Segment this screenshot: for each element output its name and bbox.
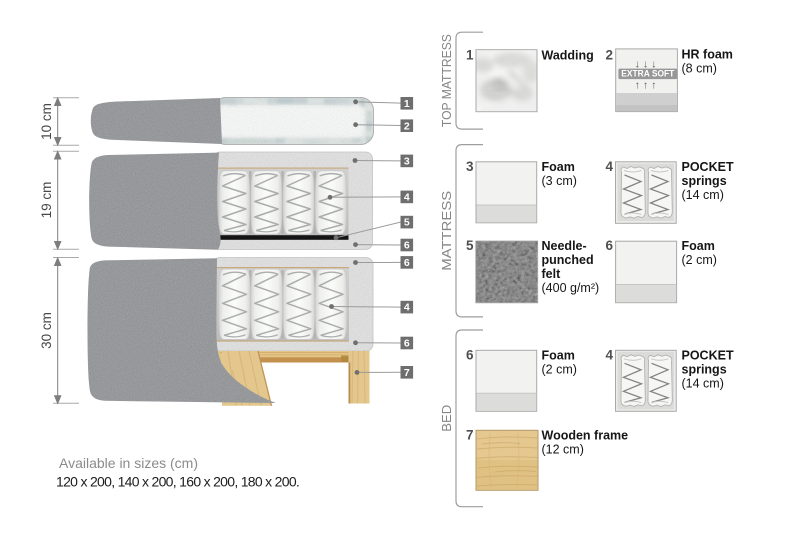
svg-text:3: 3 xyxy=(404,156,410,168)
svg-text:(12 cm): (12 cm) xyxy=(542,442,584,456)
svg-text:(2 cm): (2 cm) xyxy=(542,362,577,376)
svg-text:MATTRESS: MATTRESS xyxy=(440,191,454,271)
svg-text:Foam: Foam xyxy=(542,348,575,362)
svg-text:6: 6 xyxy=(404,338,410,350)
svg-text:1: 1 xyxy=(466,47,474,62)
svg-text:(400 g/m²): (400 g/m²) xyxy=(542,281,600,295)
svg-text:19 cm: 19 cm xyxy=(39,182,54,219)
svg-text:7: 7 xyxy=(466,427,474,442)
svg-text:(14 cm): (14 cm) xyxy=(682,376,724,390)
svg-text:4: 4 xyxy=(404,192,410,204)
svg-text:6: 6 xyxy=(404,257,410,269)
svg-text:Available in sizes (cm): Available in sizes (cm) xyxy=(59,455,198,471)
svg-text:30 cm: 30 cm xyxy=(39,312,54,349)
svg-text:Needle-: Needle- xyxy=(542,239,587,253)
svg-text:POCKET: POCKET xyxy=(682,348,734,362)
svg-text:4: 4 xyxy=(404,302,410,314)
svg-text:Foam: Foam xyxy=(682,239,715,253)
svg-text:120 x 200, 140 x 200, 160 x 20: 120 x 200, 140 x 200, 160 x 200, 180 x 2… xyxy=(56,474,299,490)
svg-text:4: 4 xyxy=(605,347,613,362)
svg-text:2: 2 xyxy=(605,47,613,62)
svg-text:10 cm: 10 cm xyxy=(39,103,54,140)
svg-text:POCKET: POCKET xyxy=(682,160,734,174)
svg-text:3: 3 xyxy=(466,159,474,174)
svg-text:HR foam: HR foam xyxy=(682,47,733,61)
svg-text:5: 5 xyxy=(466,238,474,253)
svg-text:BED: BED xyxy=(440,405,454,432)
svg-text:Wooden frame: Wooden frame xyxy=(542,428,629,442)
svg-text:springs: springs xyxy=(682,174,727,188)
svg-text:EXTRA SOFT: EXTRA SOFT xyxy=(621,69,674,79)
svg-text:punched: punched xyxy=(542,253,594,267)
svg-text:6: 6 xyxy=(605,238,613,253)
svg-text:↑↑↑: ↑↑↑ xyxy=(635,80,660,92)
svg-text:6: 6 xyxy=(404,240,410,252)
svg-text:(2 cm): (2 cm) xyxy=(682,253,717,267)
svg-text:Foam: Foam xyxy=(542,160,575,174)
svg-text:springs: springs xyxy=(682,362,727,376)
svg-text:1: 1 xyxy=(404,98,410,110)
svg-text:4: 4 xyxy=(605,159,613,174)
svg-text:TOP MATTRESS: TOP MATTRESS xyxy=(440,34,454,127)
svg-text:(3 cm): (3 cm) xyxy=(542,174,577,188)
svg-text:2: 2 xyxy=(404,120,410,132)
svg-text:(8 cm): (8 cm) xyxy=(682,61,717,75)
svg-text:6: 6 xyxy=(466,347,474,362)
svg-text:5: 5 xyxy=(404,217,410,229)
svg-text:Wadding: Wadding xyxy=(542,48,594,62)
svg-text:felt: felt xyxy=(542,267,562,281)
svg-text:7: 7 xyxy=(404,367,410,379)
svg-text:(14 cm): (14 cm) xyxy=(682,188,724,202)
